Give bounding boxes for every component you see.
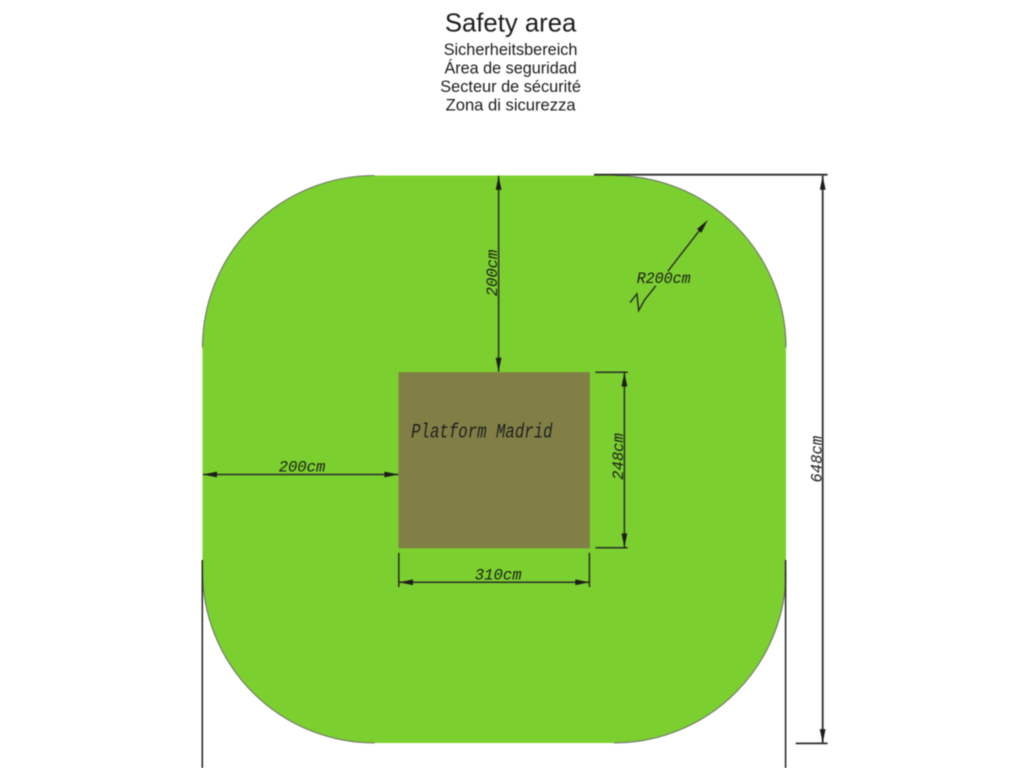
svg-text:Secteur de sécurité: Secteur de sécurité xyxy=(440,78,581,96)
svg-text:Sicherheitsbereich: Sicherheitsbereich xyxy=(444,41,578,59)
svg-text:200cm: 200cm xyxy=(279,459,326,477)
svg-text:248cm: 248cm xyxy=(610,433,628,480)
svg-text:Área de seguridad: Área de seguridad xyxy=(444,58,576,77)
svg-text:200cm: 200cm xyxy=(484,250,502,297)
svg-text:Zona di sicurezza: Zona di sicurezza xyxy=(446,97,577,115)
svg-text:310cm: 310cm xyxy=(475,566,522,584)
svg-text:Platform Madrid: Platform Madrid xyxy=(411,422,553,445)
svg-text:R200cm: R200cm xyxy=(637,270,691,288)
svg-text:648cm: 648cm xyxy=(808,436,826,483)
svg-text:Safety area: Safety area xyxy=(445,10,577,38)
